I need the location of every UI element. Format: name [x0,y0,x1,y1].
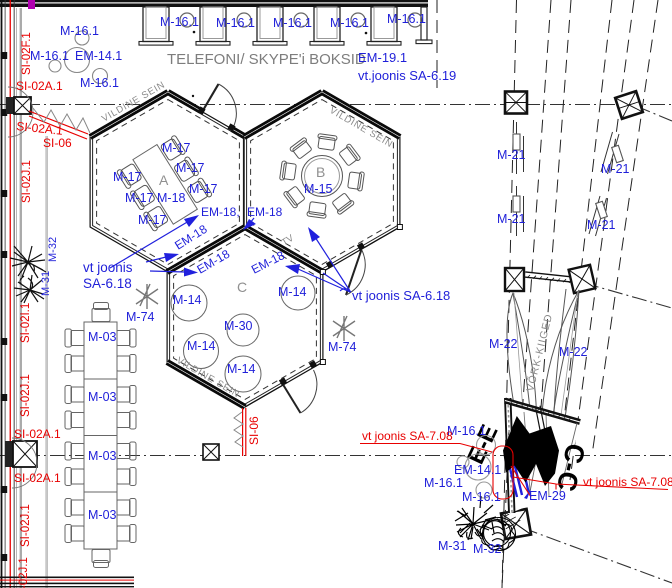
svg-text:M-16.1: M-16.1 [462,490,501,504]
svg-text:M-15: M-15 [304,182,333,196]
svg-text:SI-06: SI-06 [43,136,72,150]
svg-text:EM-18,: EM-18, [201,205,240,219]
svg-text:M-31: M-31 [40,271,52,296]
svg-text:SA-6.18: SA-6.18 [83,276,132,291]
svg-text:SI-02J.1: SI-02J.1 [20,504,32,547]
svg-text:M-21: M-21 [601,162,630,176]
svg-text:M-16.1: M-16.1 [424,476,463,490]
svg-text:EM-19.1: EM-19.1 [358,50,407,65]
svg-text:M-31: M-31 [438,539,467,553]
svg-text:M-17: M-17 [176,161,205,175]
svg-text:M-16.1: M-16.1 [330,16,369,30]
svg-text:M-18: M-18 [157,191,186,205]
svg-text:M-14: M-14 [187,339,216,353]
svg-text:EM-18: EM-18 [247,205,283,219]
svg-text:M-14: M-14 [278,285,307,299]
svg-text:M-16.1: M-16.1 [30,49,69,63]
svg-text:C: C [237,279,247,295]
svg-text:M-16.1: M-16.1 [387,12,426,26]
svg-text:M-21: M-21 [497,212,526,226]
svg-text:SI-02A.1: SI-02A.1 [16,79,63,93]
svg-text:SI-02J.1: SI-02J.1 [20,374,32,417]
svg-text:B: B [316,164,325,180]
svg-text:M-14: M-14 [173,293,202,307]
svg-text:vt joonis: vt joonis [83,260,133,275]
svg-text:SI-02A.1: SI-02A.1 [14,471,61,485]
svg-text:vt joonis SA-7.08: vt joonis SA-7.08 [362,429,453,443]
svg-text:M-16.1: M-16.1 [447,424,486,438]
svg-text:M-22: M-22 [559,345,588,359]
svg-text:M-17: M-17 [125,191,154,205]
svg-text:M-16.1: M-16.1 [60,24,99,38]
svg-text:vt joonis SA-7.08: vt joonis SA-7.08 [583,475,672,489]
svg-text:EM-14.1: EM-14.1 [454,463,501,477]
svg-text:M-16.1: M-16.1 [216,16,255,30]
svg-text:M-32: M-32 [473,542,502,556]
svg-text:M-21: M-21 [497,148,526,162]
svg-text:M-32: M-32 [47,237,59,262]
svg-text:M-17: M-17 [162,141,191,155]
svg-text:A: A [159,172,169,188]
svg-text:M-74: M-74 [328,340,357,354]
svg-text:M-17: M-17 [138,213,167,227]
svg-text:M-03: M-03 [88,330,117,344]
svg-text:M-16.1: M-16.1 [160,15,199,29]
svg-text:vt.joonis SA-6.19: vt.joonis SA-6.19 [358,68,456,83]
svg-text:vt joonis SA-6.18: vt joonis SA-6.18 [352,288,450,303]
svg-text:SI-02J.1: SI-02J.1 [21,160,33,203]
svg-text:M-74: M-74 [126,310,155,324]
svg-text:M-30: M-30 [224,319,253,333]
svg-text:M-17: M-17 [113,170,142,184]
svg-text:M-03: M-03 [88,449,117,463]
svg-text:M-14: M-14 [227,362,256,376]
svg-text:M-16.1: M-16.1 [273,16,312,30]
svg-text:SI-02J.1: SI-02J.1 [18,557,30,588]
svg-text:SI-06: SI-06 [247,416,261,445]
svg-text:M-16.1: M-16.1 [80,76,119,90]
svg-text:EM-14.1: EM-14.1 [75,49,122,63]
svg-text:SI-02F.1: SI-02F.1 [21,32,33,75]
svg-text:M-21: M-21 [587,218,616,232]
svg-text:M-03: M-03 [88,508,117,522]
svg-text:M-22: M-22 [489,337,518,351]
svg-text:SI-02A.1: SI-02A.1 [14,427,61,441]
svg-text:TELEFONI/ SKYPE'i BOKSID: TELEFONI/ SKYPE'i BOKSID [167,51,366,68]
svg-text:M-17: M-17 [189,182,218,196]
svg-text:SI-02I.1: SI-02I.1 [20,303,32,343]
svg-text:EM-29: EM-29 [529,489,566,503]
svg-text:M-03: M-03 [88,390,117,404]
